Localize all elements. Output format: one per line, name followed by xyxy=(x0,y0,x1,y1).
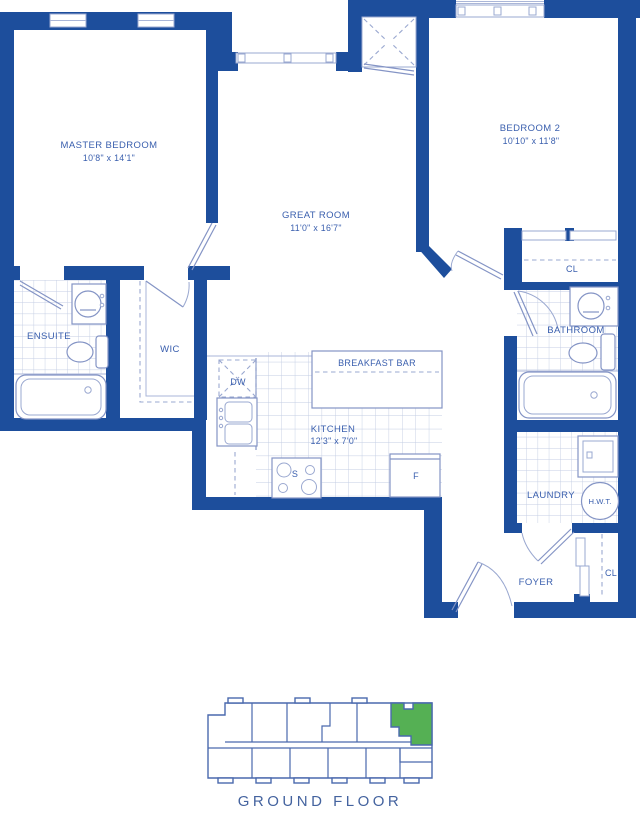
stove-label: S xyxy=(292,469,298,479)
storage-room xyxy=(362,17,416,75)
master-bedroom-dims: 10'8" x 14'1" xyxy=(83,153,135,163)
bedroom2-closet-label: CL xyxy=(566,264,578,274)
kitchen-sink xyxy=(217,398,257,446)
entry-door xyxy=(452,562,512,612)
foyer-closet-label: CL xyxy=(605,568,617,578)
wic-details xyxy=(140,281,194,402)
laundry-door xyxy=(522,529,574,564)
floor-title: GROUND FLOOR xyxy=(238,793,403,810)
kitchen-dims: 12'3" x 7'0" xyxy=(311,436,358,446)
dishwasher-label: DW xyxy=(230,377,246,387)
floor-plan-page: MASTER BEDROOM 10'8" x 14'1" GREAT ROOM … xyxy=(0,0,640,814)
master-window-right xyxy=(138,14,174,27)
bathroom-sink xyxy=(578,293,604,319)
bedroom2-window xyxy=(456,2,544,18)
bedroom2-dims: 10'10" x 11'8" xyxy=(503,136,560,146)
ensuite-bathtub xyxy=(16,375,106,419)
kitchen-label: KITCHEN xyxy=(311,424,356,435)
windows xyxy=(50,2,544,64)
washer xyxy=(578,436,618,477)
great-room-dims: 11'0" x 16'7" xyxy=(290,223,342,233)
bathroom-label: BATHROOM xyxy=(547,325,604,336)
foyer-closet xyxy=(576,534,602,598)
wic-label: WIC xyxy=(160,344,180,355)
hot-water-tank-label: H.W.T. xyxy=(589,497,612,506)
fridge-label: F xyxy=(413,471,419,481)
bedroom2-label: BEDROOM 2 xyxy=(500,123,561,134)
ensuite-sink xyxy=(75,291,101,317)
master-door xyxy=(188,223,216,270)
great-room-label: GREAT ROOM xyxy=(282,210,350,221)
breakfast-bar-label: BREAKFAST BAR xyxy=(338,358,416,368)
master-bedroom-label: MASTER BEDROOM xyxy=(61,140,158,151)
keyplan xyxy=(208,698,432,783)
laundry-label: LAUNDRY xyxy=(527,490,575,501)
foyer-label: FOYER xyxy=(519,577,554,588)
master-window-left xyxy=(50,14,86,27)
bathroom-bathtub xyxy=(519,372,616,418)
great-room-window xyxy=(236,53,336,63)
wic-door xyxy=(146,281,183,307)
floor-plan-svg: MASTER BEDROOM 10'8" x 14'1" GREAT ROOM … xyxy=(0,0,640,814)
bedroom2-door xyxy=(451,251,503,279)
ensuite-label: ENSUITE xyxy=(27,331,71,342)
